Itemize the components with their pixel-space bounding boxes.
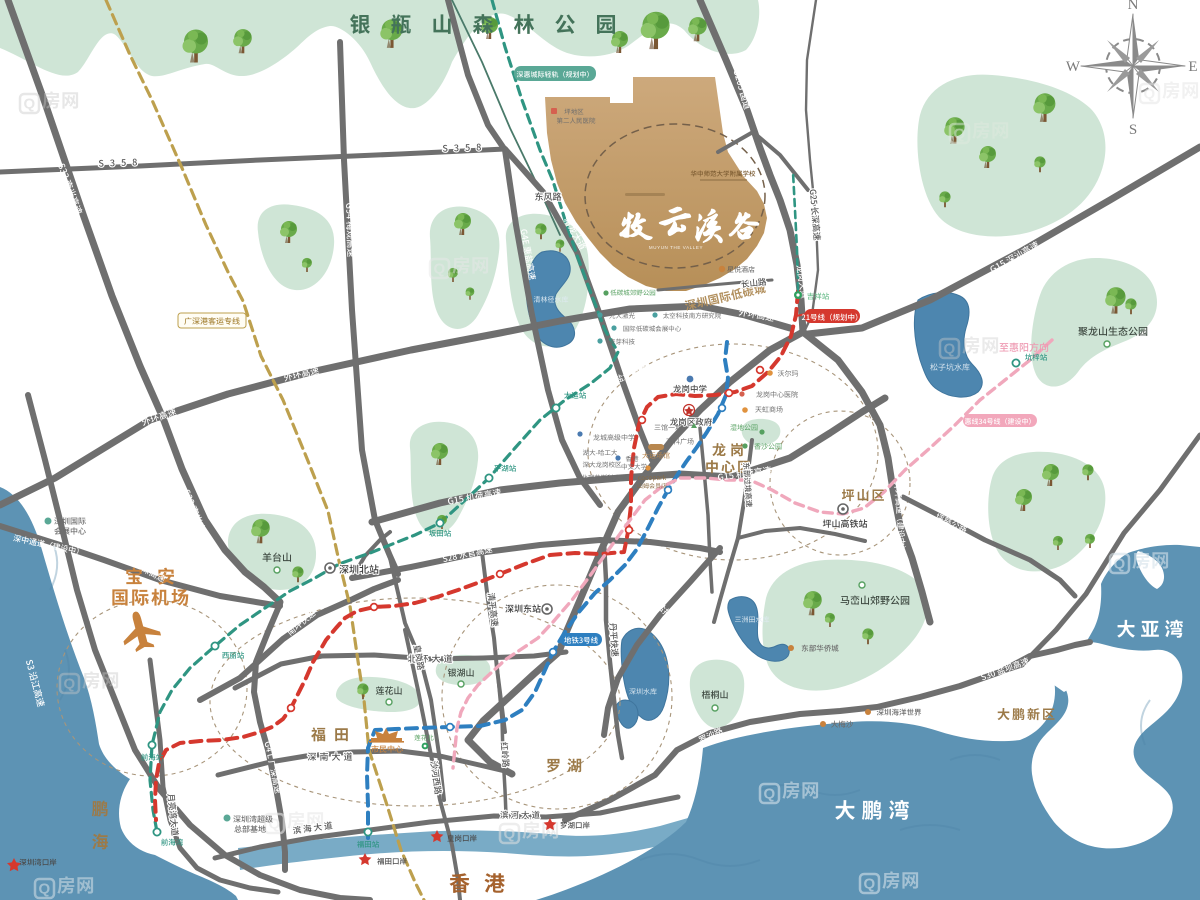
svg-text:W: W — [1066, 59, 1081, 75]
svg-text:Q: Q — [64, 676, 76, 693]
svg-text:Q: Q — [434, 261, 446, 278]
svg-text:Q: Q — [504, 826, 516, 843]
svg-text:Q: Q — [1144, 86, 1156, 103]
svg-text:Q: Q — [764, 786, 776, 803]
svg-text:MUYUN THE VALLEY: MUYUN THE VALLEY — [649, 245, 703, 250]
svg-text:Q: Q — [954, 126, 966, 143]
svg-text:Q: Q — [1114, 556, 1126, 573]
svg-text:Q: Q — [39, 881, 51, 898]
svg-text:Q: Q — [944, 341, 956, 358]
svg-text:S: S — [1129, 122, 1137, 138]
svg-text:Q: Q — [24, 96, 36, 113]
svg-text:E: E — [1188, 59, 1197, 75]
svg-text:Q: Q — [864, 876, 876, 893]
svg-text:Q: Q — [269, 816, 281, 833]
svg-text:N: N — [1128, 0, 1139, 13]
